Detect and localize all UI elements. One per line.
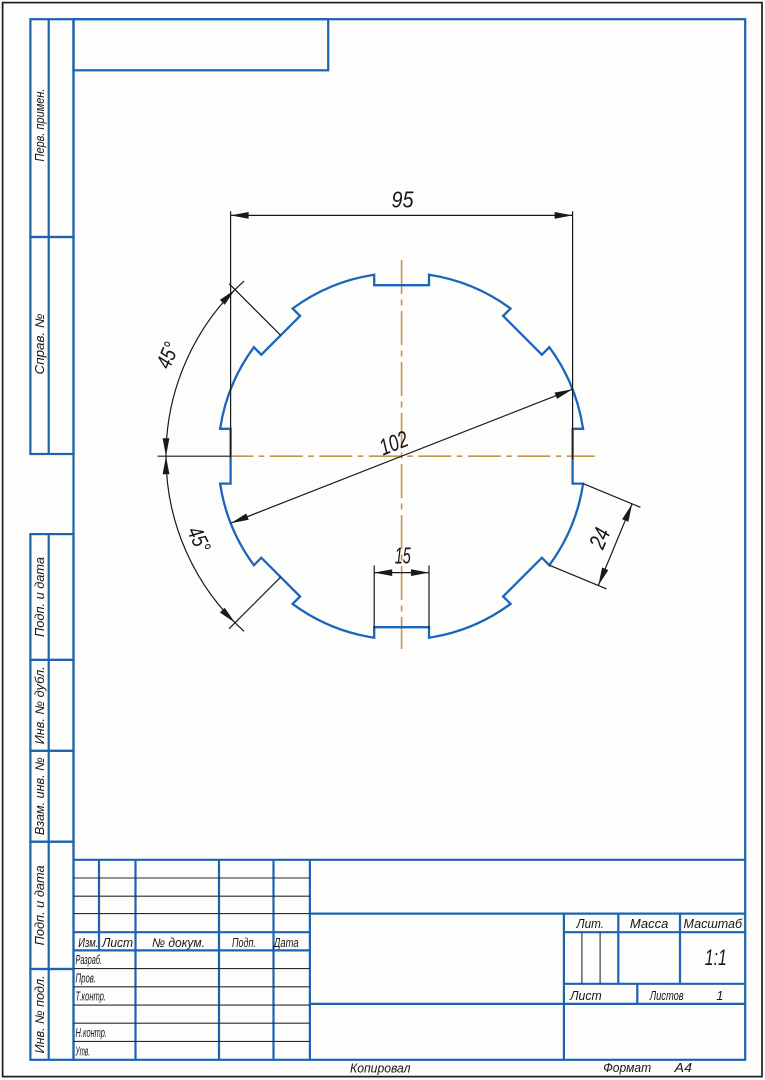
svg-text:Взам. инв. №: Взам. инв. №: [33, 757, 47, 835]
svg-text:Перв. примен.: Перв. примен.: [33, 89, 47, 162]
svg-text:Подп.: Подп.: [232, 936, 256, 950]
svg-text:Масса: Масса: [630, 917, 669, 931]
svg-text:Подп. и дата: Подп. и дата: [33, 865, 47, 945]
svg-text:Лит.: Лит.: [576, 917, 604, 931]
svg-text:Изм.: Изм.: [78, 936, 98, 950]
svg-text:Формат: Формат: [603, 1061, 651, 1075]
svg-text:Подп. и дата: Подп. и дата: [33, 557, 47, 637]
svg-text:1:1: 1:1: [705, 945, 727, 970]
svg-text:Листов: Листов: [649, 989, 684, 1003]
svg-text:Т.контр.: Т.контр.: [76, 990, 107, 1004]
svg-text:Масштаб: Масштаб: [684, 917, 743, 931]
svg-text:95: 95: [392, 186, 414, 212]
svg-text:А4: А4: [673, 1061, 692, 1075]
svg-text:Дата: Дата: [272, 936, 299, 950]
svg-text:Лист: Лист: [101, 936, 133, 950]
svg-text:Копировал: Копировал: [350, 1062, 411, 1076]
svg-text:Пров.: Пров.: [76, 971, 97, 985]
svg-text:Лист: Лист: [569, 989, 601, 1003]
svg-text:Утв.: Утв.: [75, 1044, 90, 1058]
svg-text:Справ. №: Справ. №: [33, 313, 47, 374]
svg-text:Инв. № подл.: Инв. № подл.: [33, 975, 47, 1053]
svg-text:№ докум.: № докум.: [152, 936, 205, 950]
svg-text:1: 1: [716, 989, 723, 1003]
svg-text:Н.контр.: Н.контр.: [76, 1026, 108, 1040]
svg-text:Инв. № дубл.: Инв. № дубл.: [33, 666, 47, 744]
svg-text:Разраб.: Разраб.: [76, 953, 103, 967]
svg-text:15: 15: [395, 542, 411, 568]
